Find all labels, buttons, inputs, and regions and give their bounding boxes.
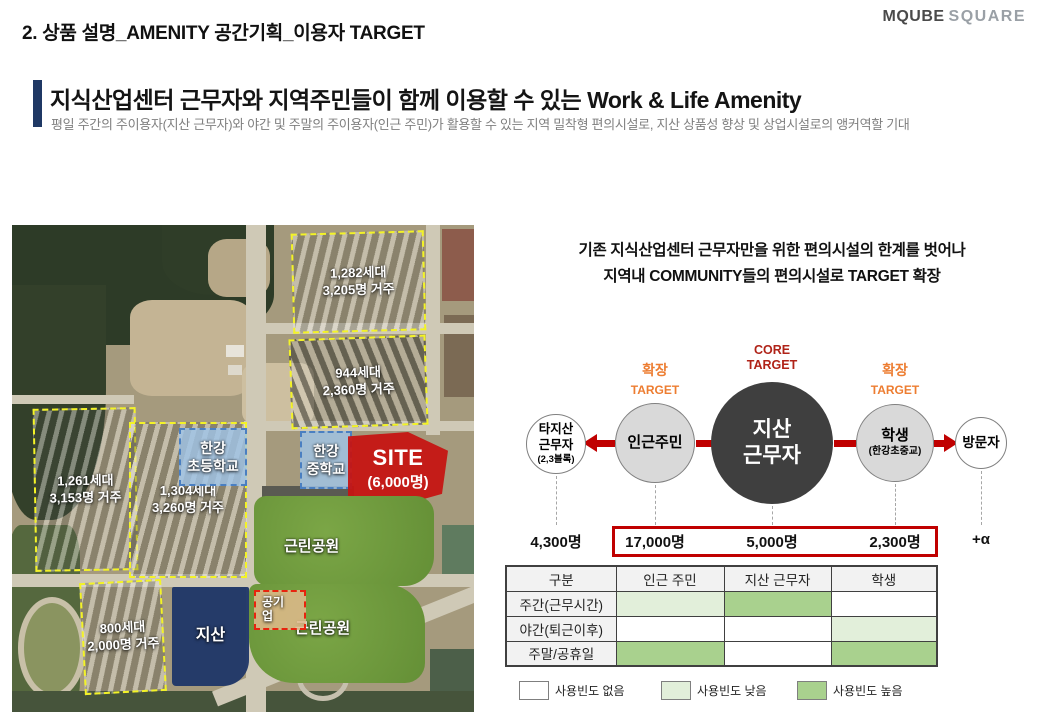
- table-header-row: 구분 인근 주민 지산 근무자 학생: [506, 566, 937, 591]
- site-label: SITE: [373, 445, 424, 471]
- headline-title: 지식산업센터 근무자와 지역주민들이 함께 이용할 수 있는 Work & Li…: [50, 81, 801, 115]
- freq-cell: [831, 616, 937, 641]
- logo-primary: MQUBE: [882, 8, 944, 25]
- freq-cell: [724, 591, 831, 616]
- legend-swatch-none: [519, 681, 549, 700]
- elementary-school-zone: 한강초등학교: [179, 428, 247, 486]
- block-population: 3,205명 거주: [322, 281, 394, 298]
- diagram-intro-line2: 지역내 COMMUNITY들의 편의시설로 TARGET 확장: [502, 264, 1040, 286]
- arrow-line: [834, 440, 856, 447]
- circle-label: 인근주민: [627, 434, 682, 453]
- legend-label: 사용빈도 높음: [833, 682, 903, 699]
- block-units: 800세대: [99, 619, 145, 636]
- block-units: 1,282세대: [330, 264, 387, 280]
- count-visitors: +α: [972, 531, 990, 548]
- count-core: 5,000명: [746, 531, 797, 552]
- block-population: 3,260명 거주: [152, 500, 224, 515]
- park-label: 근린공원: [284, 537, 339, 557]
- core-target-line: TARGET: [747, 358, 797, 372]
- circle-sublabel: (2,3블록): [537, 454, 574, 466]
- farm-buildings: [442, 229, 474, 301]
- connector-dash: [895, 484, 896, 525]
- table-row: 주간(근무시간): [506, 591, 937, 616]
- public-enterprise-label: 공기: [262, 595, 284, 609]
- expand-target-line: 확장: [642, 362, 668, 378]
- count-students: 2,300명: [869, 531, 920, 552]
- legend-low: 사용빈도 낮음: [661, 681, 767, 700]
- diagram-intro-line1: 기존 지식산업센터 근무자만을 위한 편의시설의 한계를 벗어나: [502, 238, 1040, 260]
- freq-cell: [616, 616, 724, 641]
- school-name: 한강: [313, 443, 339, 459]
- col-header: 구분: [506, 566, 616, 591]
- block-population: 2,360명 거주: [323, 381, 396, 399]
- school-name: 초등학교: [187, 458, 239, 474]
- residential-block-800: 800세대2,000명 거주: [79, 579, 167, 695]
- col-header: 학생: [831, 566, 937, 591]
- sports-field: [18, 597, 86, 699]
- row-header: 주말/공휴일: [506, 641, 616, 666]
- freq-cell: [616, 641, 724, 666]
- park-north: [254, 496, 434, 586]
- logo-secondary: SQUARE: [949, 8, 1026, 25]
- residential-block-1261: 1,261세대3,153명 거주: [33, 407, 139, 572]
- legend-swatch-high: [797, 681, 827, 700]
- circle-label: 타지산: [539, 422, 574, 438]
- row-header: 주간(근무시간): [506, 591, 616, 616]
- freq-cell: [724, 616, 831, 641]
- legend-label: 사용빈도 없음: [555, 682, 625, 699]
- residential-block-944: 944세대2,360명 거주: [288, 335, 428, 430]
- headline-accent-bar: [33, 80, 42, 127]
- freq-cell: [616, 591, 724, 616]
- arrow-line: [597, 440, 615, 447]
- connector-dash: [655, 485, 656, 525]
- legend-label: 사용빈도 낮음: [697, 682, 767, 699]
- core-target-label: CORE TARGET: [747, 343, 797, 373]
- school-name: 한강: [200, 440, 226, 456]
- connector-dash: [772, 506, 773, 525]
- public-enterprise-zone: 공기업: [254, 590, 306, 630]
- circle-label: 지산: [753, 417, 792, 443]
- headline-subtitle: 평일 주간의 주이용자(지산 근무자)와 야간 및 주말의 주이용자(인근 주민…: [51, 114, 910, 133]
- freq-cell: [831, 591, 937, 616]
- jisan-built-zone: 지산: [172, 587, 249, 686]
- row-header: 야간(퇴근이후): [506, 616, 616, 641]
- table-row: 야간(퇴근이후): [506, 616, 937, 641]
- block-units: 944세대: [335, 364, 381, 381]
- expand-target-label-right: 확장 TARGET: [871, 361, 919, 399]
- middle-school-zone: 한강중학교: [300, 431, 352, 489]
- circle-sublabel: (한강초중교): [869, 446, 922, 459]
- circle-students: 학생 (한강초중교): [856, 404, 934, 482]
- circle-other-jisan-workers: 타지산 근무자 (2,3블록): [526, 414, 586, 474]
- circle-label: 방문자: [962, 435, 999, 452]
- expand-target-line: TARGET: [871, 383, 919, 397]
- core-target-line: CORE: [754, 343, 790, 357]
- block-population: 3,153명 거주: [49, 489, 121, 505]
- building-cluster: [226, 345, 244, 357]
- table-row: 주말/공휴일: [506, 641, 937, 666]
- public-enterprise-label: 업: [262, 609, 273, 623]
- site-satellite-map: 1,282세대3,205명 거주 944세대2,360명 거주 1,261세대3…: [12, 225, 474, 712]
- school-name: 중학교: [307, 461, 346, 477]
- expand-target-label-left: 확장 TARGET: [631, 361, 679, 399]
- residential-block-1282: 1,282세대3,205명 거주: [291, 230, 427, 333]
- expand-target-line: 확장: [882, 362, 908, 378]
- expand-target-line: TARGET: [631, 383, 679, 397]
- count-other-jisan: 4,300명: [530, 531, 581, 552]
- page-title: 2. 상품 설명_AMENITY 공간기획_이용자 TARGET: [22, 18, 425, 45]
- circle-label: 근무자: [743, 443, 801, 469]
- legend-high: 사용빈도 높음: [797, 681, 903, 700]
- freq-cell: [724, 641, 831, 666]
- legend-none: 사용빈도 없음: [519, 681, 625, 700]
- site-capacity: (6,000명): [367, 471, 428, 492]
- slide: 2. 상품 설명_AMENITY 공간기획_이용자 TARGET MQUBESQ…: [0, 0, 1040, 720]
- connector-dash: [556, 476, 557, 525]
- site-zone: SITE (6,000명): [348, 432, 448, 504]
- road: [12, 395, 134, 404]
- circle-neighbors: 인근주민: [615, 403, 695, 483]
- legend-swatch-low: [661, 681, 691, 700]
- block-units: 1,261세대: [57, 472, 114, 488]
- circle-jisan-workers-core: 지산 근무자: [711, 382, 833, 504]
- freq-cell: [831, 641, 937, 666]
- circle-visitors: 방문자: [955, 417, 1007, 469]
- count-neighbors: 17,000명: [625, 531, 685, 552]
- col-header: 지산 근무자: [724, 566, 831, 591]
- circle-label: 근무자: [539, 438, 574, 454]
- circle-label: 학생: [881, 427, 909, 446]
- arrow-line: [934, 440, 944, 447]
- arrow-line: [696, 440, 712, 447]
- jisan-label: 지산: [196, 626, 225, 647]
- usage-frequency-table: 구분 인근 주민 지산 근무자 학생 주간(근무시간) 야간(퇴근이후) 주말/…: [505, 565, 938, 667]
- connector-dash: [981, 471, 982, 525]
- col-header: 인근 주민: [616, 566, 724, 591]
- company-logo: MQUBESQUARE: [882, 8, 1026, 26]
- building-cluster: [228, 365, 242, 375]
- block-population: 2,000명 거주: [87, 635, 160, 654]
